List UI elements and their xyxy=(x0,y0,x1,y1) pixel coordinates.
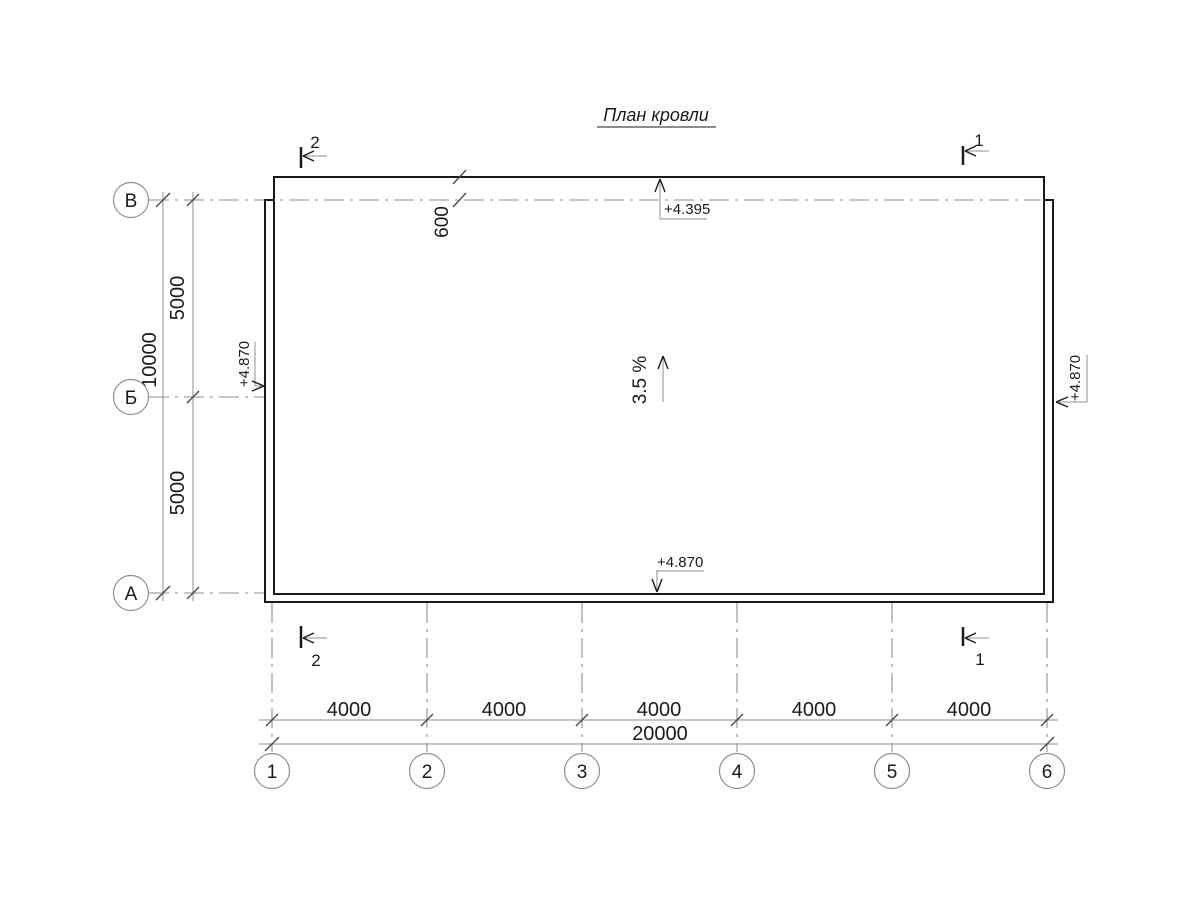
slope-annotation: 3.5 % xyxy=(630,356,668,405)
axis-bubble-b: Б xyxy=(114,380,149,415)
elevation-value-bottom: +4.870 xyxy=(657,554,703,571)
axis-label: В xyxy=(125,191,138,212)
drawing-sheet: План кровли 5000 5000 10000 xyxy=(0,0,1200,900)
parapet-outline xyxy=(265,200,1053,602)
axis-bubble-3: 3 xyxy=(565,754,600,789)
axis-bubble-4: 4 xyxy=(720,754,755,789)
dim-value-5000-lower: 5000 xyxy=(167,471,189,516)
section-label: 2 xyxy=(310,133,319,152)
eave-offset-dimension: 600 xyxy=(432,170,466,238)
axis-label: 1 xyxy=(267,762,278,783)
grid-axis-lines xyxy=(149,200,1047,752)
section-mark-1-top: 1 xyxy=(963,131,989,165)
bottom-dimension-chain: 4000 4000 4000 4000 4000 20000 xyxy=(259,699,1058,751)
axis-label: 2 xyxy=(422,762,433,783)
slope-value: 3.5 % xyxy=(630,356,651,405)
elevation-value-top: +4.395 xyxy=(664,201,710,218)
dim-value-600: 600 xyxy=(432,206,453,238)
elevation-left: +4.870 xyxy=(236,341,264,391)
axis-bubble-1: 1 xyxy=(255,754,290,789)
dim-value-4000-3: 4000 xyxy=(637,699,682,721)
axis-label: А xyxy=(125,584,138,605)
elevation-top: +4.395 xyxy=(655,179,710,219)
elevation-value-right: +4.870 xyxy=(1067,355,1084,401)
axis-bubble-2: 2 xyxy=(410,754,445,789)
section-label: 2 xyxy=(311,651,320,670)
axis-label: 6 xyxy=(1042,762,1053,783)
page-title: План кровли xyxy=(603,105,709,125)
dim-value-4000-2: 4000 xyxy=(482,699,527,721)
axis-label: 5 xyxy=(887,762,898,783)
section-label: 1 xyxy=(974,131,983,150)
axis-label: Б xyxy=(125,388,137,409)
axis-label: 4 xyxy=(732,762,743,783)
section-mark-2-top: 2 xyxy=(301,133,327,168)
section-mark-2-bottom: 2 xyxy=(301,626,327,670)
axis-bubble-5: 5 xyxy=(875,754,910,789)
axis-bubble-v: В xyxy=(114,183,149,218)
drawing-title-group: План кровли xyxy=(597,105,716,127)
elevation-right: +4.870 xyxy=(1056,355,1087,407)
roof-outline xyxy=(274,177,1044,594)
roof-plan-drawing: План кровли 5000 5000 10000 xyxy=(0,0,1200,900)
axis-bubble-6: 6 xyxy=(1030,754,1065,789)
elevation-value-left: +4.870 xyxy=(236,341,253,387)
dim-value-10000: 10000 xyxy=(139,332,161,388)
dim-value-4000-4: 4000 xyxy=(792,699,837,721)
dim-value-4000-5: 4000 xyxy=(947,699,992,721)
axis-label: 3 xyxy=(577,762,588,783)
dim-value-20000: 20000 xyxy=(632,723,688,745)
elevation-bottom: +4.870 xyxy=(652,554,704,592)
section-mark-1-bottom: 1 xyxy=(963,627,989,669)
dim-value-4000-1: 4000 xyxy=(327,699,372,721)
section-label: 1 xyxy=(975,650,984,669)
axis-bubble-a: А xyxy=(114,576,149,611)
building-outlines xyxy=(265,177,1053,602)
dim-value-5000-upper: 5000 xyxy=(167,276,189,321)
